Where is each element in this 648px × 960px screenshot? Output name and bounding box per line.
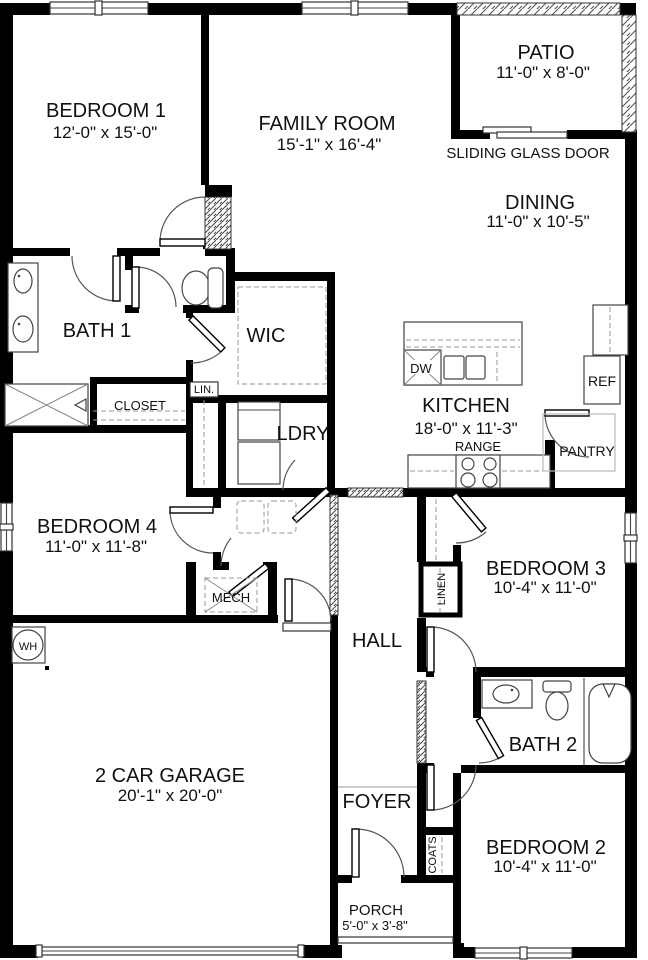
ldry-label: LDRY bbox=[277, 423, 330, 445]
door-front bbox=[352, 829, 404, 877]
closet-label: CLOSET bbox=[114, 398, 166, 413]
bedroom3-dims: 10'-4" x 11'-0" bbox=[493, 578, 596, 597]
wh-label: WH bbox=[19, 641, 37, 653]
bath1-vanity bbox=[8, 263, 38, 352]
garage-door bbox=[36, 945, 304, 957]
porch-label: PORCH bbox=[349, 902, 403, 919]
bedroom2-label: BEDROOM 2 bbox=[486, 837, 606, 859]
porch-edge bbox=[338, 937, 453, 943]
dw-label: DW bbox=[410, 361, 432, 376]
door-bedroom3 bbox=[452, 493, 486, 543]
range-counter bbox=[408, 455, 550, 488]
patio-label: PATIO bbox=[517, 42, 574, 64]
attic-access-dashed bbox=[237, 501, 296, 533]
bedroom4-dims: 11'-0" x 11'-8" bbox=[45, 537, 147, 556]
kitchen-label: KITCHEN bbox=[422, 395, 510, 417]
bath1-label: BATH 1 bbox=[63, 320, 132, 342]
door-garage-entry bbox=[283, 579, 331, 631]
garage-label: 2 CAR GARAGE bbox=[95, 765, 245, 787]
patio-dims: 11'-0" x 8'-0" bbox=[496, 63, 590, 82]
pantry-label: PANTRY bbox=[559, 443, 615, 459]
dining-dims: 11'-0" x 10'-5" bbox=[486, 212, 589, 231]
bath2-vanity bbox=[482, 680, 532, 708]
range-label: RANGE bbox=[455, 439, 502, 454]
coats-label: COATS bbox=[427, 836, 439, 873]
ref-label: REF bbox=[588, 373, 616, 389]
toilet-icon-bath2 bbox=[543, 681, 571, 720]
bedroom4-label: BEDROOM 4 bbox=[37, 516, 157, 538]
door-wic bbox=[189, 316, 225, 363]
washer-dryer-icon bbox=[238, 402, 280, 484]
range-icon bbox=[456, 455, 500, 488]
hall-label: HALL bbox=[352, 630, 402, 652]
family-room-dims: 15'-1" x 16'-4" bbox=[277, 135, 382, 154]
window-bedroom4 bbox=[0, 503, 13, 551]
door-bath1 bbox=[72, 256, 120, 301]
door-bedroom4 bbox=[170, 507, 213, 553]
bedroom2-dims: 10'-4" x 11'-0" bbox=[493, 857, 596, 876]
sliding-glass-door bbox=[483, 127, 567, 138]
kitchen-sink-icon bbox=[444, 356, 485, 379]
door-bedroom1 bbox=[160, 197, 205, 246]
window-bedroom3 bbox=[624, 513, 637, 563]
window-bedroom1 bbox=[50, 1, 148, 15]
bath2-label: BATH 2 bbox=[509, 734, 578, 756]
toilet-icon-bath1 bbox=[182, 268, 223, 308]
floor-plan: BEDROOM 1 12'-0" x 15'-0" FAMILY ROOM 15… bbox=[0, 0, 648, 960]
bedroom1-label: BEDROOM 1 bbox=[46, 100, 166, 122]
bathtub-icon bbox=[584, 678, 631, 765]
shower-icon bbox=[5, 384, 88, 426]
cabinet-above-ref bbox=[593, 305, 628, 355]
door-bath2 bbox=[476, 718, 503, 764]
garage-dims: 20'-1" x 20'-0" bbox=[118, 786, 223, 805]
family-room-label: FAMILY ROOM bbox=[258, 113, 395, 135]
linen-cabinet bbox=[190, 382, 218, 485]
door-toilet-room bbox=[132, 267, 176, 308]
porch-dims: 5'-0" x 3'-8" bbox=[342, 918, 408, 933]
sliding-glass-door-label: SLIDING GLASS DOOR bbox=[446, 145, 610, 162]
floor-plan-drawing: BEDROOM 1 12'-0" x 15'-0" FAMILY ROOM 15… bbox=[0, 0, 648, 960]
door-bedroom3-closet bbox=[427, 627, 476, 672]
mech-label: MECH bbox=[212, 590, 250, 605]
kitchen-dims: 18'-0" x 11'-3" bbox=[414, 419, 517, 438]
bedroom1-dims: 12'-0" x 15'-0" bbox=[53, 123, 158, 142]
window-family-room bbox=[302, 1, 408, 15]
linen-label: LINEN bbox=[436, 573, 448, 605]
bedroom3-label: BEDROOM 3 bbox=[486, 558, 606, 580]
foyer-label: FOYER bbox=[343, 791, 412, 813]
lin-label: LIN. bbox=[194, 384, 214, 396]
window-bedroom2 bbox=[475, 947, 572, 959]
wic-label: WIC bbox=[247, 325, 286, 347]
dining-label: DINING bbox=[505, 192, 575, 214]
